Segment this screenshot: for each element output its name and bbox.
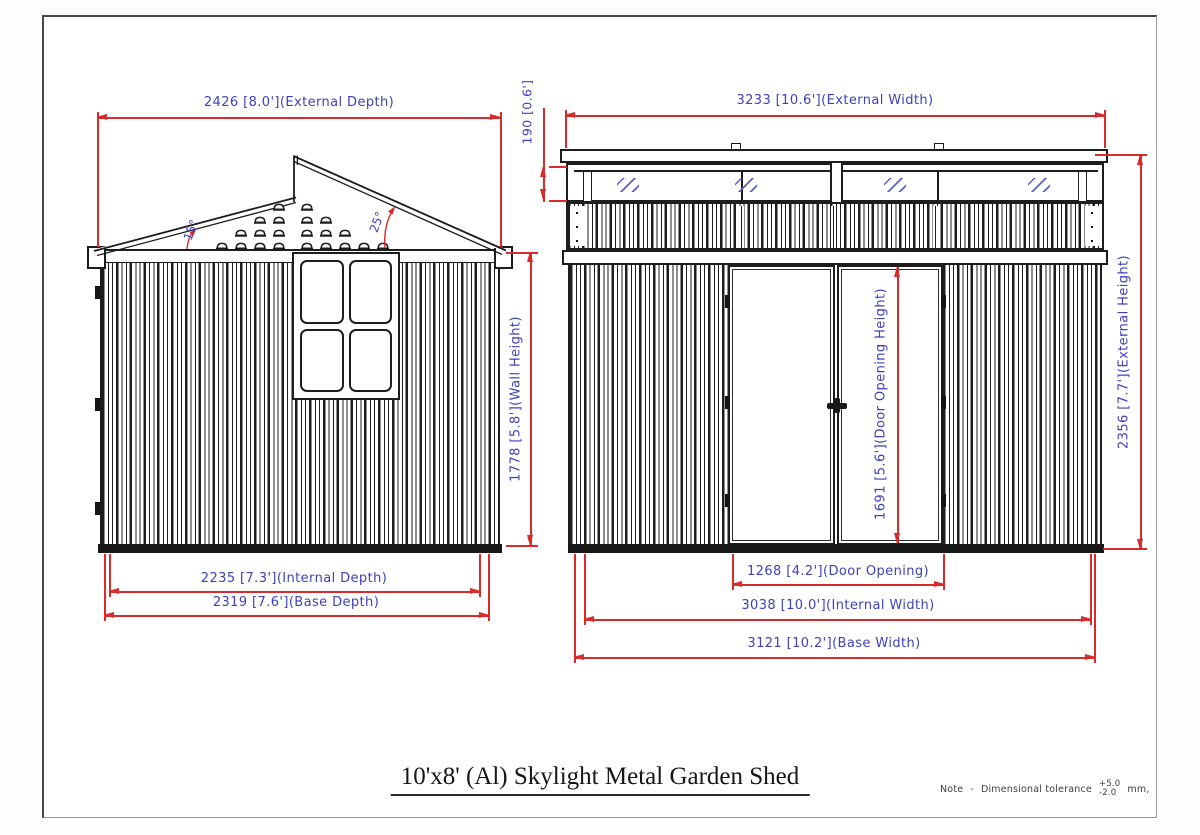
arrow-up (894, 266, 900, 277)
dim-line-base-depth (104, 615, 489, 617)
door-leaf-left (728, 265, 835, 545)
drawing-title-text: 10'x8' (Al) Skylight Metal Garden Shed (401, 763, 800, 790)
dim-line-skylight-height (543, 108, 545, 202)
window-pane (349, 329, 393, 393)
ext-line (97, 112, 99, 247)
door-leaf-right (837, 265, 943, 545)
door-hinge (941, 295, 946, 308)
ext-line (488, 554, 490, 621)
dim-internal-depth: 2235 [7.3'](Internal Depth) (201, 571, 387, 586)
skylight-frame-left (583, 171, 592, 202)
ext-line (584, 554, 586, 625)
ext-line (506, 252, 538, 254)
dim-line-door-opening-height (897, 267, 899, 543)
door-handle-knob (834, 398, 840, 413)
ext-line (500, 112, 502, 247)
side-base-rail (98, 544, 502, 553)
door-hinge (941, 494, 946, 507)
arrow-up (540, 166, 546, 177)
door-handle (827, 398, 847, 413)
dim-line-door-opening (732, 584, 944, 586)
door-hinge (725, 295, 730, 308)
dim-door-opening: 1268 [4.2'](Door Opening) (747, 564, 929, 579)
dim-internal-width: 3038 [10.0'](Internal Width) (741, 598, 934, 613)
skylight-frame-right (1078, 171, 1087, 202)
ext-line (1104, 110, 1106, 148)
side-hinge-top (95, 286, 100, 299)
dim-line-internal-depth (109, 591, 480, 593)
ext-line (479, 554, 481, 597)
ext-line (549, 166, 567, 168)
door-hinge (725, 494, 730, 507)
tolerance-note: Note - Dimensional tolerance +5.0 -2.0 m… (940, 780, 1150, 798)
tolerance-minus: -2.0 (1099, 789, 1120, 798)
side-hinge-bottom (95, 502, 100, 515)
rivet-dots-left (576, 212, 578, 214)
dim-base-width: 3121 [10.2'](Base Width) (747, 636, 920, 651)
front-wall-left (568, 265, 728, 545)
skylight-glass-hatch (617, 178, 639, 192)
dim-external-depth: 2426 [8.0'](External Depth) (204, 95, 394, 110)
dim-line-external-width (565, 115, 1105, 117)
ext-line (732, 554, 734, 590)
ext-line (104, 554, 106, 621)
window-pane (300, 260, 344, 324)
ext-line (549, 200, 567, 202)
ext-line (574, 554, 576, 663)
ext-line (1090, 554, 1092, 625)
note-text: Dimensional tolerance (981, 784, 1092, 795)
door-hinge (941, 396, 946, 409)
skylight-glass-hatch (1028, 178, 1050, 192)
dim-wall-height: 1778 [5.8'](Wall Height) (509, 316, 524, 482)
dim-line-external-depth (97, 117, 500, 119)
ext-line (506, 545, 538, 547)
skylight-center-mullion (830, 163, 843, 202)
front-trim-band (562, 250, 1108, 265)
note-separator: - (970, 784, 974, 795)
front-base-rail (568, 544, 1104, 553)
panel-joint (831, 206, 836, 248)
rivet-dots-right (1091, 212, 1093, 214)
drawing-title: 10'x8' (Al) Skylight Metal Garden Shed (391, 763, 810, 796)
front-wall-right (943, 265, 1102, 545)
skylight-glass-hatch (884, 178, 906, 192)
window-pane (349, 260, 393, 324)
arrow-down (540, 189, 546, 200)
window-pane (300, 329, 344, 393)
front-roof-slab (560, 149, 1108, 163)
dim-base-depth: 2319 [7.6'](Base Depth) (213, 595, 379, 610)
side-window (292, 252, 400, 400)
door-hinge (725, 396, 730, 409)
tolerance-values: +5.0 -2.0 (1099, 780, 1120, 798)
ext-line (1095, 154, 1147, 156)
ext-line (1094, 554, 1096, 663)
ext-line (565, 110, 567, 148)
dim-skylight-height: 190 [0.6'] (520, 80, 535, 145)
dim-door-opening-height: 1691 [5.6'](Door Opening Height) (874, 288, 889, 520)
panel-joint (739, 206, 744, 248)
dim-external-height: 2356 [7.7'](External Height) (1117, 255, 1132, 449)
ext-line (943, 554, 945, 590)
dim-line-internal-width (584, 619, 1091, 621)
dim-line-external-height (1140, 155, 1142, 549)
ext-line (109, 554, 111, 597)
side-hinge-middle (95, 398, 100, 411)
note-label: Note (940, 784, 963, 795)
dim-external-width: 3233 [10.6'](External Width) (736, 93, 933, 108)
panel-joint (933, 206, 938, 248)
dim-line-base-width (574, 657, 1095, 659)
note-unit: mm, (1127, 784, 1149, 795)
skylight-divider (937, 171, 939, 202)
skylight-glass-hatch (735, 178, 757, 192)
ext-line (1103, 548, 1147, 550)
arrow-up (1137, 154, 1143, 165)
arrow-down (894, 533, 900, 544)
drawing-canvas: 15° 25° 2426 [8.0'](External Depth) 1778… (0, 0, 1200, 835)
dim-line-wall-height (530, 252, 532, 545)
